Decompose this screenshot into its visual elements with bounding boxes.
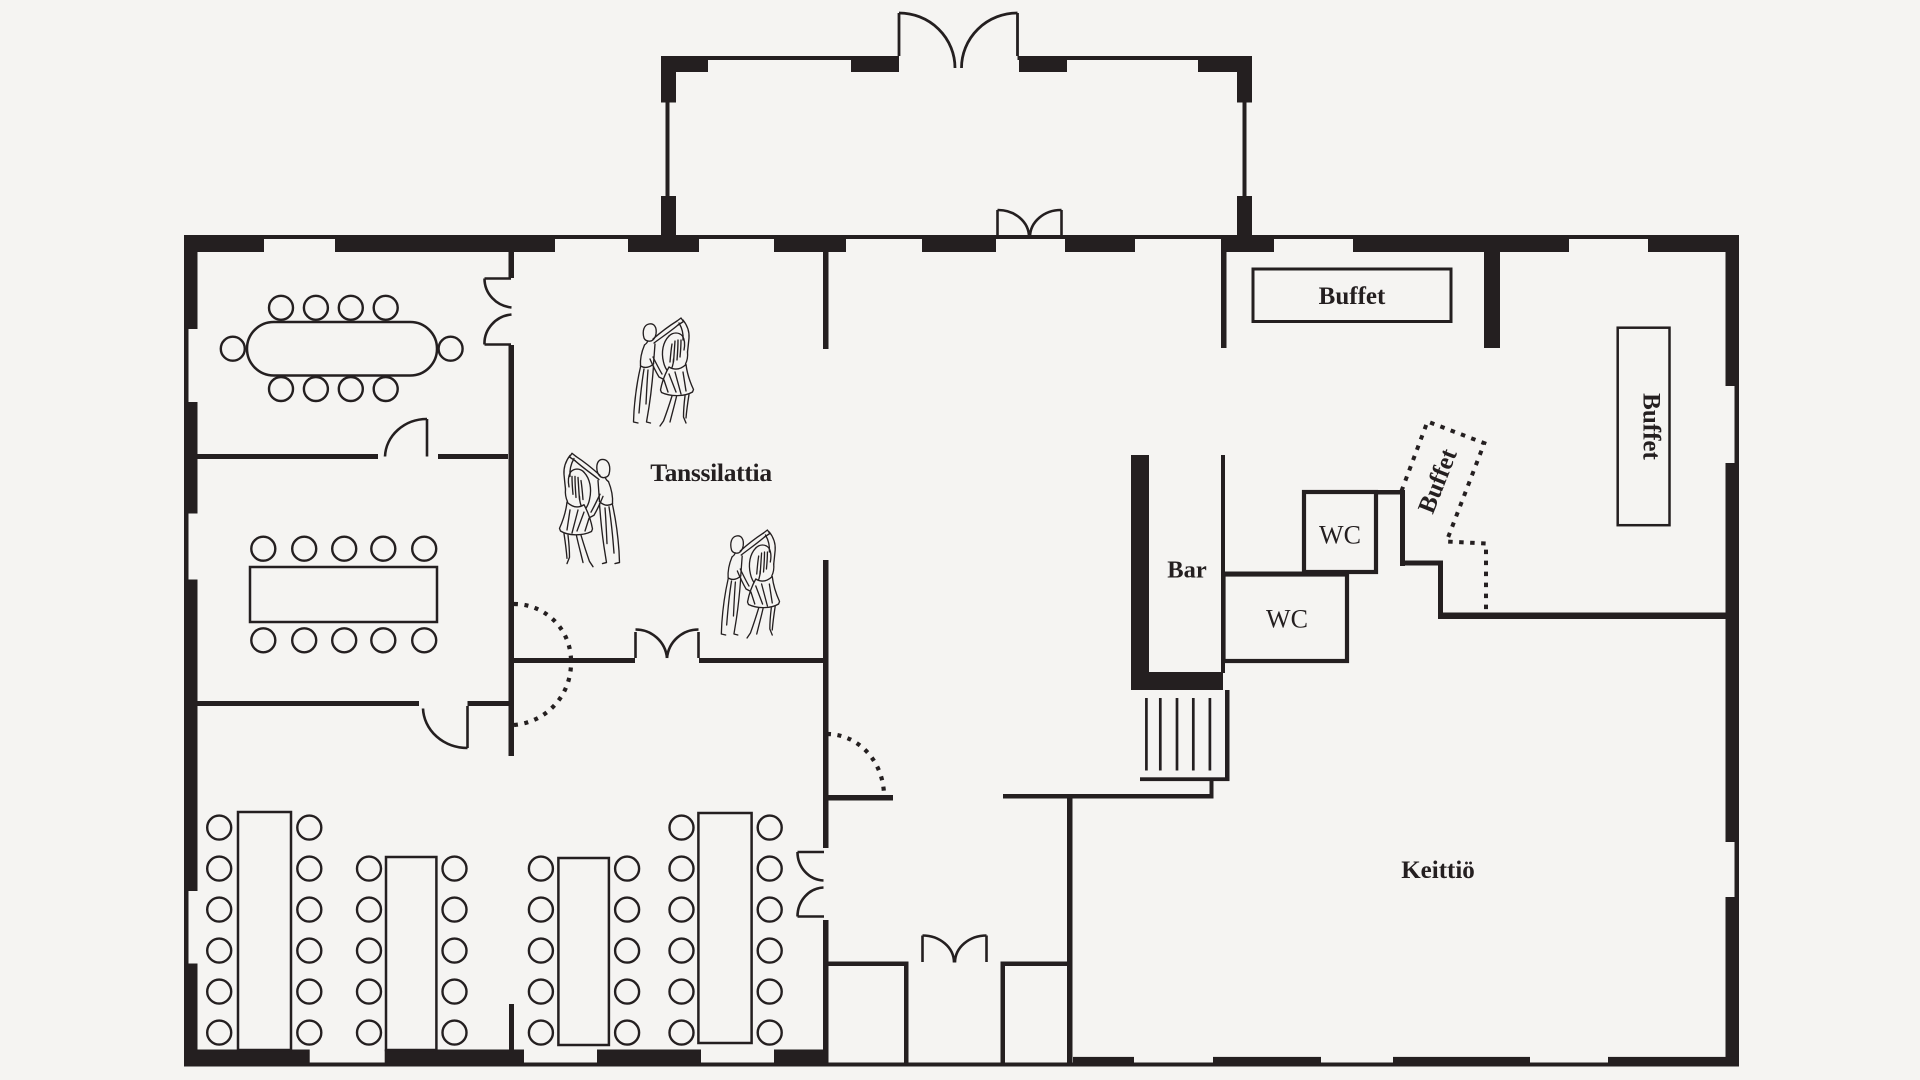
- svg-text:Buffet: Buffet: [1638, 393, 1665, 460]
- svg-text:WC: WC: [1266, 605, 1308, 634]
- svg-text:Buffet: Buffet: [1319, 283, 1386, 310]
- svg-text:Bar: Bar: [1167, 557, 1207, 584]
- svg-text:WC: WC: [1319, 521, 1361, 550]
- svg-text:Keittiö: Keittiö: [1401, 857, 1475, 884]
- svg-text:Tanssilattia: Tanssilattia: [650, 458, 772, 487]
